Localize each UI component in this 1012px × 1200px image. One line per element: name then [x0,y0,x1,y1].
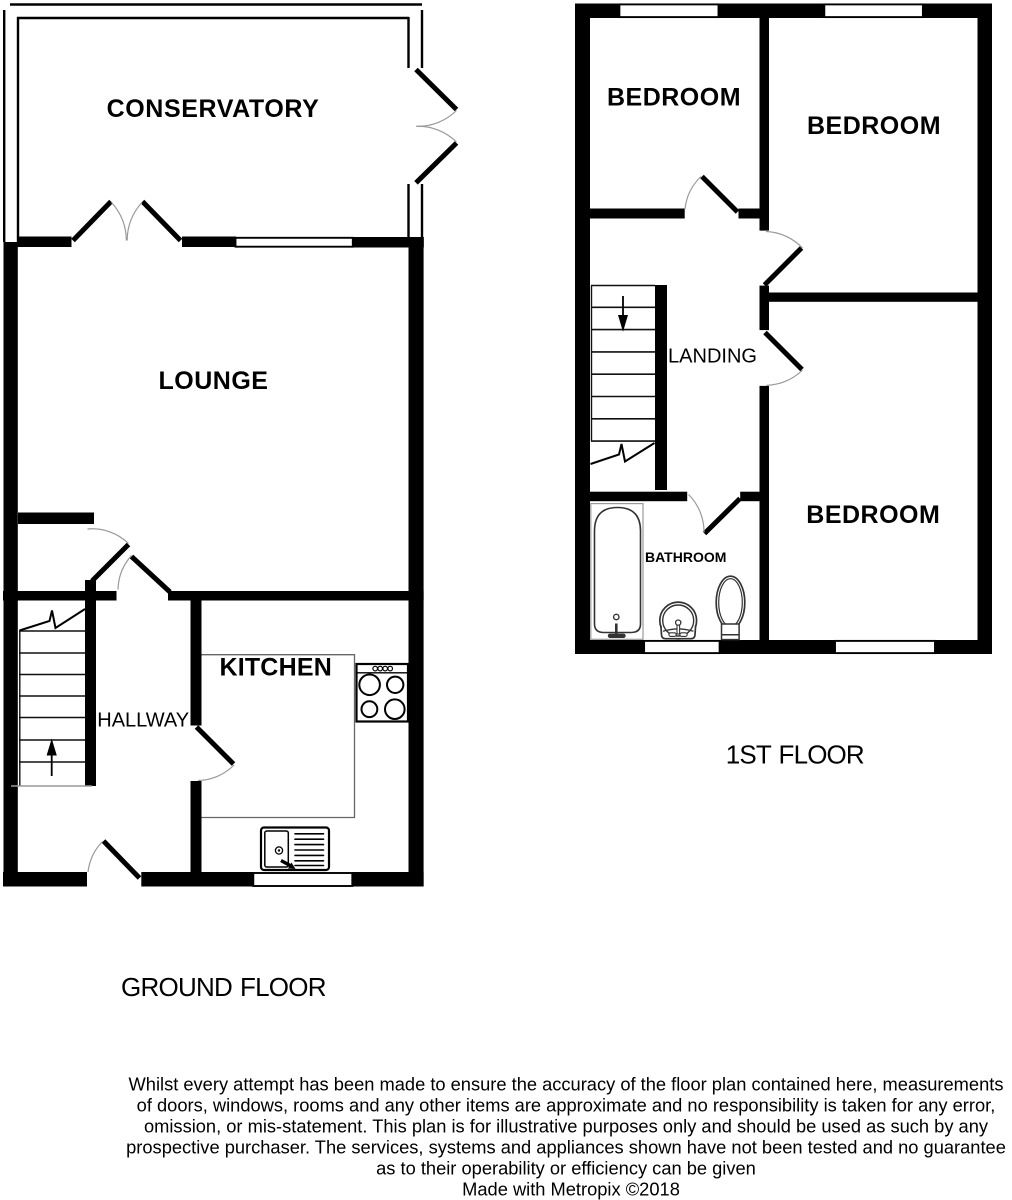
svg-text:of doors, windows, rooms and a: of doors, windows, rooms and any other i… [137,1095,996,1116]
svg-text:Whilst every attempt has been: Whilst every attempt has been made to en… [129,1074,1004,1095]
svg-text:omission, or mis-statement. Th: omission, or mis-statement. This plan is… [144,1116,989,1137]
svg-text:as to their operability or eff: as to their operability or efficiency ca… [376,1158,756,1179]
svg-text:BEDROOM: BEDROOM [807,112,941,140]
svg-text:KITCHEN: KITCHEN [219,654,332,682]
svg-text:GROUND FLOOR: GROUND FLOOR [121,972,326,1002]
svg-text:BEDROOM: BEDROOM [607,84,741,112]
svg-text:Made with Metropix ©2018: Made with Metropix ©2018 [462,1179,680,1200]
svg-text:LANDING: LANDING [668,346,757,368]
svg-text:CONSERVATORY: CONSERVATORY [107,95,320,123]
svg-text:HALLWAY: HALLWAY [97,710,189,732]
svg-text:BATHROOM: BATHROOM [645,549,726,565]
svg-text:prospective purchaser. The ser: prospective purchaser. The services, sys… [126,1137,1006,1158]
svg-text:1ST FLOOR: 1ST FLOOR [726,740,864,770]
svg-text:LOUNGE: LOUNGE [159,367,269,395]
svg-text:BEDROOM: BEDROOM [806,501,940,529]
